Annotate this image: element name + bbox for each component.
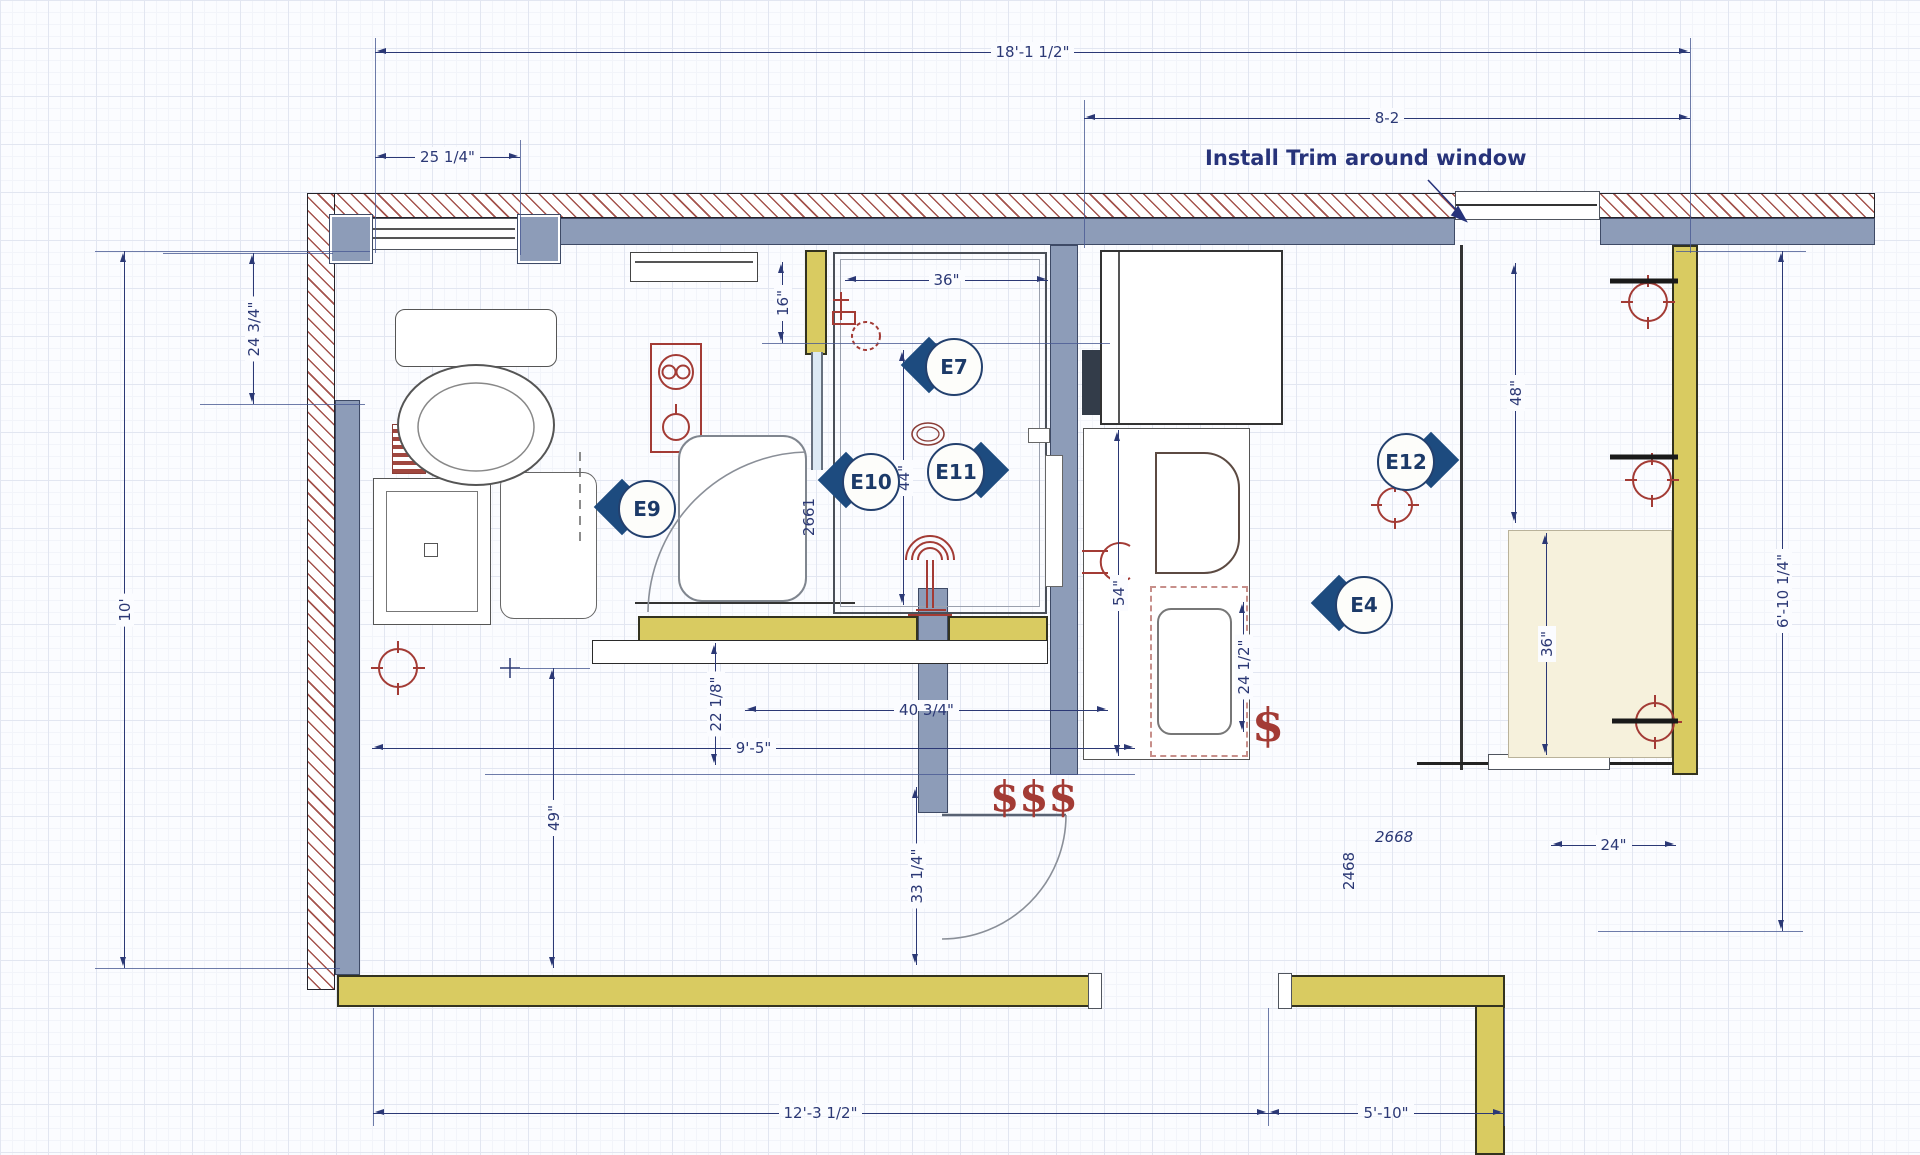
dim-label: 12'-3 1/2" xyxy=(779,1103,863,1114)
ext-line xyxy=(1690,38,1691,253)
cost-triple: $$$ xyxy=(990,772,1078,821)
ext-line xyxy=(95,251,370,252)
dim-bottom-left[interactable]: 12'-3 1/2" xyxy=(373,1113,1268,1114)
dim-shower-width[interactable]: 36" xyxy=(845,280,1048,281)
dim-label: 9'-5" xyxy=(731,738,777,749)
dim-label: 24 3/4" xyxy=(245,296,263,361)
marker-e12[interactable]: E12 xyxy=(1377,427,1453,493)
dim-label: 40 3/4" xyxy=(894,700,959,711)
dim-bottom-right[interactable]: 5'-10" xyxy=(1268,1113,1504,1114)
dim-label: 36" xyxy=(1538,626,1556,662)
dim-label: 22 1/8" xyxy=(707,672,725,737)
dim-label: 54" xyxy=(1110,575,1128,611)
note-install-trim[interactable]: Install Trim around window xyxy=(1205,146,1527,170)
label-door-shower[interactable]: 2661 xyxy=(800,498,818,536)
ext-line xyxy=(163,253,333,254)
label-door-2468[interactable]: 2468 xyxy=(1340,852,1358,890)
dim-wall-seg[interactable]: 49" xyxy=(553,668,554,968)
marker-e7[interactable]: E7 xyxy=(907,332,983,398)
cost-single: $ xyxy=(1252,698,1284,752)
dim-label: 48" xyxy=(1507,375,1525,411)
leader-arrow xyxy=(1428,180,1466,221)
ext-line xyxy=(95,968,340,969)
marker-e4[interactable]: E4 xyxy=(1317,570,1393,636)
dim-left-upper[interactable]: 24 3/4" xyxy=(253,253,254,404)
marker-label: E4 xyxy=(1335,576,1393,634)
ceiling-fixture xyxy=(1625,453,1679,507)
floor-plan-canvas: 18'-1 1/2" 8-2 25 1/4" 24 3/4" 10' 16" 3… xyxy=(0,0,1920,1155)
dim-closet-lower[interactable]: 36" xyxy=(1546,533,1547,755)
dim-label: 16" xyxy=(774,285,792,321)
dim-closet-height[interactable]: 6'-10 1/4" xyxy=(1782,251,1783,931)
ext-line xyxy=(1084,100,1085,248)
door-arc-bottom xyxy=(942,815,1066,939)
marker-e10[interactable]: E10 xyxy=(824,447,900,513)
dim-label: 6'-10 1/4" xyxy=(1774,549,1792,633)
dim-label: 49" xyxy=(545,800,563,836)
dim-closet-upper[interactable]: 48" xyxy=(1515,263,1516,523)
dim-bench-depth[interactable]: 24" xyxy=(1551,845,1676,846)
dim-label: 33 1/4" xyxy=(908,844,926,909)
dim-niche[interactable]: 16" xyxy=(782,262,783,343)
marker-e11[interactable]: E11 xyxy=(927,437,1003,503)
ext-line xyxy=(1598,931,1803,932)
marker-e9[interactable]: E9 xyxy=(600,474,676,540)
shower-head-icon xyxy=(833,292,880,350)
marker-label: E9 xyxy=(618,480,676,538)
ceiling-fixture xyxy=(371,641,425,695)
dim-label: 24" xyxy=(1596,835,1632,846)
ext-line xyxy=(375,38,376,253)
dim-entry[interactable]: 33 1/4" xyxy=(916,787,917,965)
marker-label: E11 xyxy=(927,443,985,501)
dim-label: 8-2 xyxy=(1370,108,1405,119)
dim-overall-top[interactable]: 18'-1 1/2" xyxy=(375,52,1690,53)
dim-label: 18'-1 1/2" xyxy=(991,42,1075,53)
marker-label: E10 xyxy=(842,453,900,511)
dim-left-height[interactable]: 10' xyxy=(124,251,125,968)
dim-pan-width[interactable]: 40 3/4" xyxy=(745,710,1108,711)
dim-shower-len[interactable]: 44" xyxy=(903,350,904,605)
dim-top-right[interactable]: 8-2 xyxy=(1084,118,1690,119)
dim-toilet-width[interactable]: 25 1/4" xyxy=(375,157,520,158)
fan-light-symbol xyxy=(659,355,693,440)
label-door-2668[interactable]: 2668 xyxy=(1375,828,1413,846)
ext-line xyxy=(1676,251,1806,252)
plan-curves xyxy=(0,0,1920,1155)
dim-label: 36" xyxy=(929,270,965,281)
ext-line xyxy=(520,668,590,669)
dim-step[interactable]: 22 1/8" xyxy=(715,643,716,765)
marker-label: E7 xyxy=(925,338,983,396)
dim-vanity-len[interactable]: 54" xyxy=(1118,430,1119,756)
marker-label: E12 xyxy=(1377,433,1435,491)
closet-shelf-lines xyxy=(1610,281,1678,721)
dim-label: 24 1/2" xyxy=(1235,635,1253,700)
ext-line xyxy=(200,404,365,405)
dim-room-len[interactable]: 9'-5" xyxy=(372,748,1135,749)
dim-vanity-depth[interactable]: 24 1/2" xyxy=(1243,602,1244,732)
ref-cross xyxy=(500,658,520,678)
dim-label: 10' xyxy=(116,593,134,626)
drain-icon xyxy=(906,536,954,615)
dim-label: 5'-10" xyxy=(1358,1103,1413,1114)
dim-label: 25 1/4" xyxy=(415,147,480,158)
